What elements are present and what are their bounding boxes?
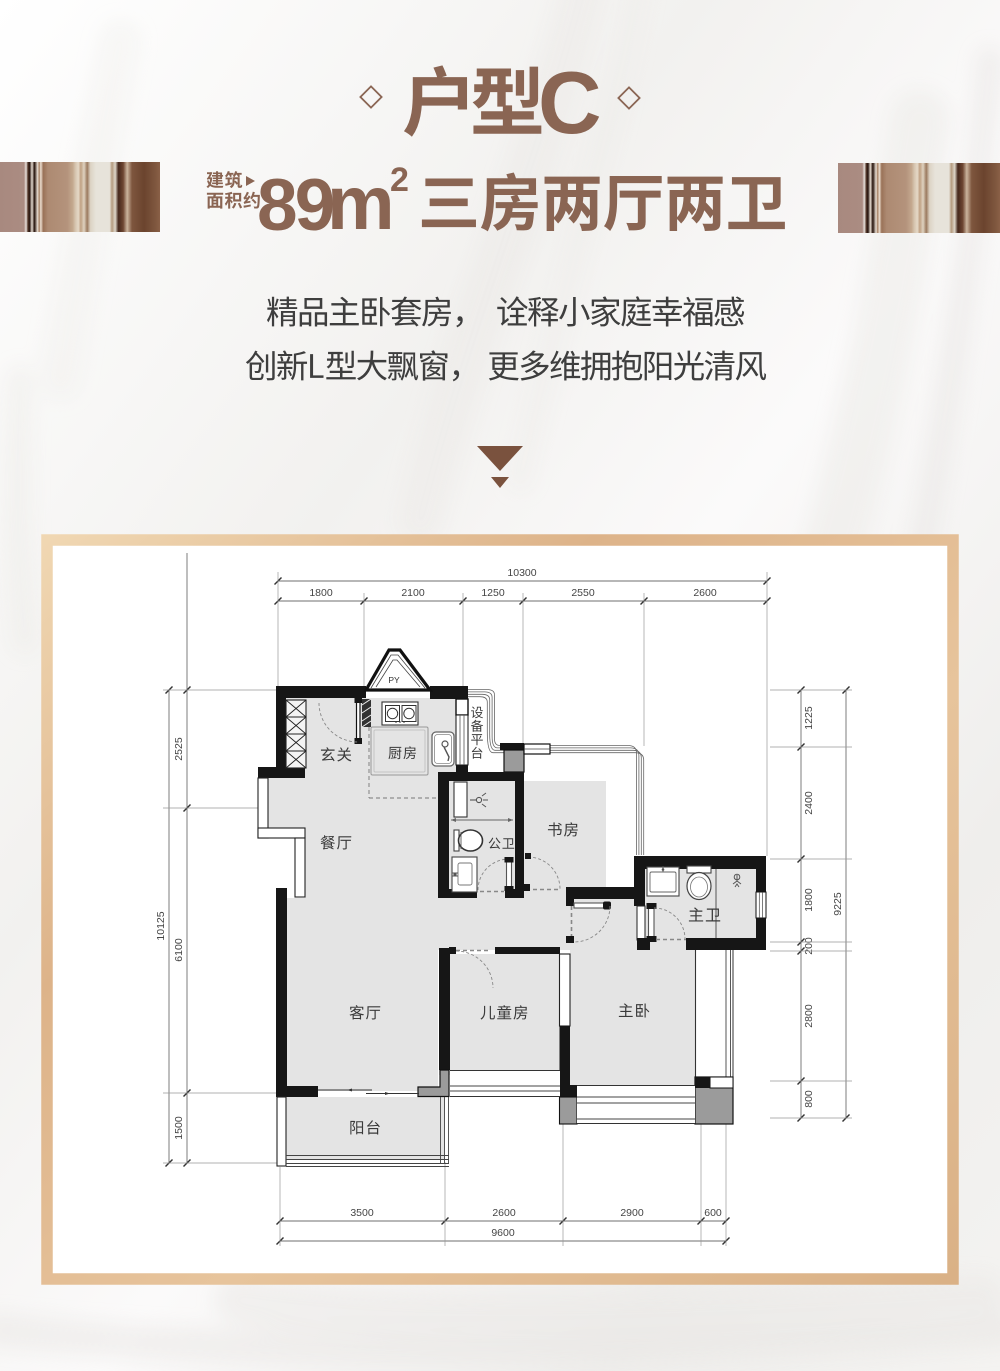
svg-text:C: C [538, 53, 602, 152]
svg-text:1800: 1800 [803, 888, 815, 912]
svg-text:2400: 2400 [803, 791, 815, 815]
svg-text:PY: PY [388, 675, 400, 685]
svg-text:2600: 2600 [492, 1207, 516, 1219]
svg-text:1225: 1225 [803, 706, 815, 730]
svg-text:600: 600 [704, 1207, 722, 1219]
svg-text:2900: 2900 [620, 1207, 644, 1219]
svg-text:1800: 1800 [309, 587, 333, 599]
svg-text:2550: 2550 [571, 587, 595, 599]
svg-text:2100: 2100 [401, 587, 425, 599]
svg-text:9225: 9225 [832, 892, 844, 916]
svg-text:1500: 1500 [173, 1116, 185, 1140]
svg-text:2600: 2600 [693, 587, 717, 599]
svg-text:200: 200 [803, 937, 815, 955]
svg-text:3500: 3500 [350, 1207, 374, 1219]
svg-text:800: 800 [803, 1090, 815, 1108]
svg-text:2525: 2525 [173, 737, 185, 761]
svg-text:10125: 10125 [155, 911, 167, 940]
svg-text:m: m [327, 161, 395, 246]
svg-text:1250: 1250 [481, 587, 505, 599]
svg-text:6100: 6100 [173, 938, 185, 962]
svg-text:89: 89 [257, 165, 333, 246]
svg-text:9600: 9600 [491, 1227, 515, 1239]
svg-text:2: 2 [390, 161, 409, 199]
svg-text:10300: 10300 [507, 567, 536, 579]
svg-text:2800: 2800 [803, 1004, 815, 1028]
